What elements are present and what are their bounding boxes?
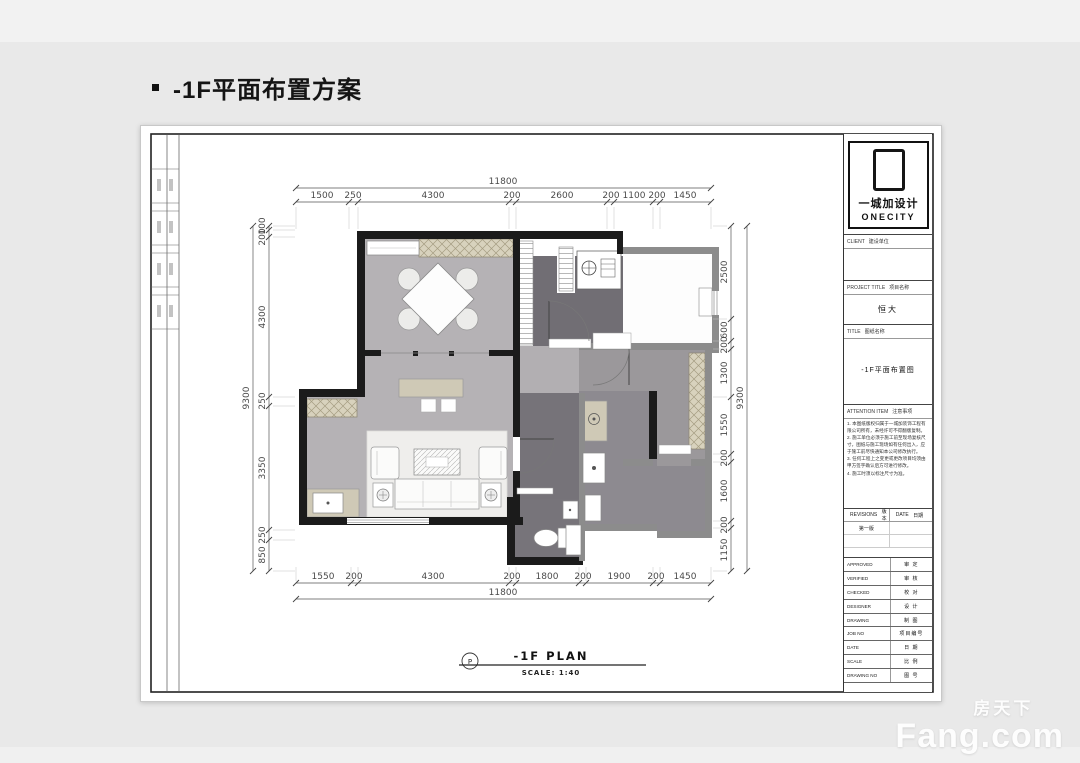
svg-text:250: 250 — [258, 526, 268, 543]
svg-text:9300: 9300 — [242, 386, 252, 409]
svg-text:1550: 1550 — [312, 572, 335, 582]
row-approved: APPROVED审 定 — [844, 558, 932, 572]
top-band — [0, 0, 1080, 42]
note-1: 1. 本图纸版权归属于一城加装饰工程有限公司所有，未经许可不得翻版复制。 — [847, 421, 929, 434]
note-2: 2. 施工单位必须于施工前至现场复核尺寸，图纸与施工现场如有任何出入，应于施工前… — [847, 435, 929, 455]
svg-text:200: 200 — [720, 449, 730, 466]
project-name: 恒大 — [844, 304, 932, 315]
note-3: 3. 任何工程上之变更或更改项目均须由甲方签字确认后方可进行修改。 — [847, 456, 929, 469]
client-label-cn: 建设单位 — [869, 238, 889, 245]
svg-text:SCALE: 1:40: SCALE: 1:40 — [522, 669, 581, 677]
svg-text:1450: 1450 — [674, 572, 697, 582]
revisions-label: REVISIONS — [847, 512, 877, 518]
drawing-sheet: 1500 250 4300 200 2600 200 1100 200 1450… — [140, 125, 942, 702]
svg-text:9300: 9300 — [736, 386, 746, 409]
svg-text:1300: 1300 — [720, 361, 730, 384]
signature-rows: APPROVED审 定 VERIFIED审 核 CHECKED校 对 DESIG… — [844, 557, 932, 683]
project-label-cn: 项目名称 — [889, 284, 909, 291]
svg-text:200: 200 — [720, 516, 730, 533]
svg-text:2500: 2500 — [720, 260, 730, 283]
row-drawing: DRAWING制 图 — [844, 614, 932, 628]
logo-brand-en: ONECITY — [861, 212, 915, 222]
row-drawingno: DRAWING NO图 号 — [844, 669, 932, 683]
svg-text:1100: 1100 — [623, 191, 646, 201]
svg-text:600: 600 — [720, 321, 730, 338]
row-jobno: JOB NO项目编号 — [844, 627, 932, 641]
svg-text:200: 200 — [602, 191, 619, 201]
dimension-right: 2500 600 200 1300 1550 200 1600 200 1150… — [720, 223, 750, 574]
svg-text:200: 200 — [648, 191, 665, 201]
svg-text:4300: 4300 — [422, 191, 445, 201]
sheet-title-section: TITLE 图纸名称 -1F平面布置图 — [844, 324, 932, 404]
logo-brand-cn: 一城加设计 — [859, 195, 919, 211]
watermark-cn: 房天下 — [973, 700, 1064, 717]
binding-strip-marks — [157, 179, 173, 317]
svg-text:200: 200 — [720, 336, 730, 353]
bullet-icon — [152, 84, 159, 91]
revision-value: 第一版 — [844, 522, 890, 534]
svg-text:1900: 1900 — [608, 572, 631, 582]
sheet-title-label: TITLE — [847, 329, 861, 335]
dimension-top: 1500 250 4300 200 2600 200 1100 200 1450… — [293, 177, 714, 205]
row-designer: DESIGNER设 计 — [844, 600, 932, 614]
svg-text:4300: 4300 — [422, 572, 445, 582]
floor-plan-svg: 1500 250 4300 200 2600 200 1100 200 1450… — [141, 126, 941, 701]
svg-text:200: 200 — [345, 572, 362, 582]
project-section: PROJECT TITLE 项目名称 恒大 — [844, 280, 932, 324]
svg-text:200: 200 — [574, 572, 591, 582]
svg-text:850: 850 — [258, 546, 268, 563]
svg-text:200: 200 — [503, 191, 520, 201]
row-checked: CHECKED校 对 — [844, 586, 932, 600]
logo-door-icon — [873, 149, 905, 191]
row-scale: SCALE比 例 — [844, 655, 932, 669]
svg-text:1500: 1500 — [311, 191, 334, 201]
date-col-label: DATE — [893, 512, 909, 518]
client-label: CLIENT — [847, 239, 865, 245]
note-4: 4. 施工时须以标注尺寸为准。 — [847, 471, 929, 478]
svg-text:-1F PLAN: -1F PLAN — [514, 649, 589, 663]
attention-label: ATTENTION ITEM — [847, 409, 888, 415]
attention-notes: 1. 本图纸版权归属于一城加装饰工程有限公司所有，未经许可不得翻版复制。 2. … — [844, 419, 932, 480]
svg-text:2600: 2600 — [551, 191, 574, 201]
svg-text:1150: 1150 — [720, 538, 730, 561]
company-logo: 一城加设计 ONECITY — [848, 141, 929, 229]
row-verified: VERIFIED审 核 — [844, 572, 932, 586]
page-heading: -1F平面布置方案 — [152, 70, 362, 105]
client-section: CLIENT 建设单位 — [844, 234, 932, 280]
svg-text:3350: 3350 — [258, 456, 268, 479]
dimension-left: 100 200 4300 250 3350 250 850 9300 — [242, 217, 272, 574]
revisions-label-cn: 版本 — [879, 508, 889, 522]
svg-text:1550: 1550 — [720, 413, 730, 436]
attention-label-cn: 注意事项 — [892, 408, 912, 415]
watermark-logo: Fang.com — [895, 719, 1064, 753]
sheet-title-value: -1F平面布置图 — [844, 365, 932, 375]
plan-label: P -1F PLAN SCALE: 1:40 — [459, 649, 646, 677]
fang-watermark: 房天下 Fang.com — [895, 700, 1064, 753]
date-col-label-cn: 日期 — [910, 512, 923, 519]
svg-text:1600: 1600 — [720, 479, 730, 502]
svg-text:200: 200 — [258, 228, 268, 245]
project-label: PROJECT TITLE — [847, 285, 885, 291]
svg-text:250: 250 — [344, 191, 361, 201]
svg-text:11800: 11800 — [489, 588, 518, 598]
hvac-unit — [577, 251, 621, 289]
svg-text:250: 250 — [258, 392, 268, 409]
page-title: -1F平面布置方案 — [173, 70, 362, 105]
revisions-section: REVISIONS 版本 DATE 日期 第一版 — [844, 508, 932, 557]
attention-section: ATTENTION ITEM 注意事项 1. 本图纸版权归属于一城加装饰工程有限… — [844, 404, 932, 508]
svg-text:11800: 11800 — [489, 177, 518, 187]
dimension-bottom: 1550 200 4300 200 1800 200 1900 200 1450… — [293, 572, 714, 602]
svg-text:1450: 1450 — [674, 191, 697, 201]
svg-text:1800: 1800 — [536, 572, 559, 582]
svg-text:200: 200 — [503, 572, 520, 582]
sheet-title-label-cn: 图纸名称 — [865, 328, 885, 335]
svg-text:4300: 4300 — [258, 305, 268, 328]
svg-text:200: 200 — [647, 572, 664, 582]
title-block: 一城加设计 ONECITY CLIENT 建设单位 PROJECT TITLE … — [843, 134, 932, 692]
row-date: DATE日 期 — [844, 641, 932, 655]
